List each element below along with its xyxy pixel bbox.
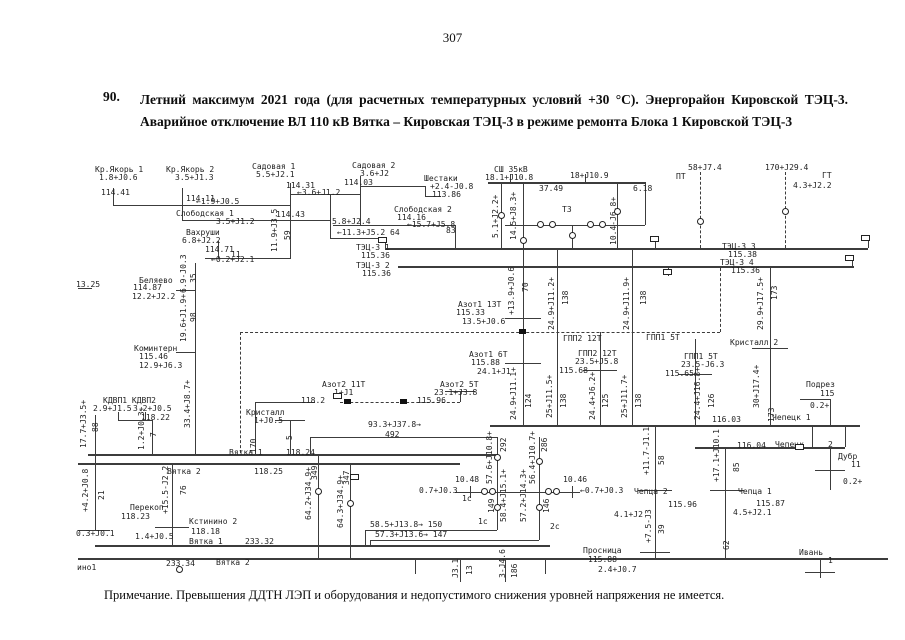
diagram-label: 5.8+J2.4 bbox=[332, 218, 371, 226]
diagram-label: 64 bbox=[390, 229, 400, 237]
diagram-label: 138 bbox=[635, 394, 643, 408]
diagram-line bbox=[545, 560, 546, 574]
diagram-label: 12.9+J6.3 bbox=[139, 362, 182, 370]
diagram-line bbox=[330, 238, 380, 239]
transformer-icon bbox=[587, 221, 594, 228]
diagram-label: Вятка 1 bbox=[229, 449, 263, 457]
diagram-label: 93.3+J37.8→ bbox=[368, 421, 421, 429]
transformer-icon bbox=[176, 566, 183, 573]
breaker-icon bbox=[350, 474, 359, 480]
diagram-label: 14.5+J8.3+ bbox=[510, 192, 518, 240]
diagram-label: Ивань bbox=[799, 549, 823, 557]
diagram-label: 292 bbox=[500, 438, 508, 452]
diagram-label: 64.3+J34.9+ bbox=[337, 475, 345, 528]
diagram-label: 113.86 bbox=[432, 191, 461, 199]
diagram-label: 115.96 bbox=[417, 397, 446, 405]
breaker-icon bbox=[650, 236, 659, 242]
transformer-icon bbox=[537, 221, 544, 228]
diagram-line bbox=[868, 240, 869, 248]
diagram-label: 2.9+J1.5 bbox=[93, 405, 132, 413]
breaker-icon bbox=[378, 237, 387, 243]
diagram-label: ино1 bbox=[77, 564, 96, 572]
diagram-line bbox=[176, 352, 195, 353]
diagram-label: 118.25 bbox=[254, 468, 283, 476]
diagram-label: 10.46 bbox=[563, 476, 587, 484]
diagram-line bbox=[539, 437, 540, 540]
diagram-label: 115.36 bbox=[361, 252, 390, 260]
diagram-label: 1+J0.5 bbox=[254, 417, 283, 425]
diagram-dashed-line bbox=[720, 268, 721, 332]
breaker-icon bbox=[333, 393, 342, 399]
diagram-line bbox=[365, 530, 366, 545]
diagram-label: +7.5-J3 bbox=[645, 509, 653, 543]
diagram-line bbox=[805, 572, 835, 573]
diagram-label: 116.04 bbox=[737, 442, 766, 450]
transformer-icon bbox=[545, 488, 552, 495]
diagram-label: Кстинино 2 bbox=[189, 518, 237, 526]
diagram-label: ГПП2 12Т bbox=[563, 335, 602, 343]
diagram-label: 57.2+J14.3+ bbox=[520, 469, 528, 522]
diagram-label: 18.1+J10.8 bbox=[485, 174, 533, 182]
diagram-label: 3.5+J1.3 bbox=[175, 174, 214, 182]
network-diagram: Кр.Якорь 11.8+J0.6114.41Кр.Якорь 23.5+J1… bbox=[0, 0, 905, 640]
diagram-label: 33.4+J8.7+ bbox=[184, 380, 192, 428]
diagram-label: 13.25 bbox=[76, 281, 100, 289]
diagram-label: Чепца 2 bbox=[634, 488, 668, 496]
diagram-label: 115.33 bbox=[456, 309, 485, 317]
diagram-label: 0.2+ bbox=[810, 402, 829, 410]
diagram-label: 10.48 bbox=[455, 476, 479, 484]
diagram-line bbox=[455, 492, 580, 493]
diagram-line bbox=[415, 560, 416, 574]
diagram-label: 286 bbox=[541, 438, 549, 452]
diagram-line bbox=[557, 250, 558, 425]
diagram-label: ГТ bbox=[822, 172, 832, 180]
diagram-line bbox=[600, 332, 601, 425]
diagram-label: Вятка 2 bbox=[167, 468, 201, 476]
diagram-label: 2 bbox=[828, 441, 833, 449]
diagram-label: 4.3+J2.2 bbox=[793, 182, 832, 190]
diagram-label: 29.9+J17.5+ bbox=[757, 277, 765, 330]
diagram-label: 12.2+J2.2 bbox=[132, 293, 175, 301]
diagram-label: 0.7+J0.3 bbox=[419, 487, 458, 495]
diagram-label: 11.9+J3.5 bbox=[271, 209, 279, 252]
diagram-label: 114.03 bbox=[344, 179, 373, 187]
diagram-label: Вятка 2 bbox=[216, 559, 250, 567]
diagram-label: 10.4-J6.8+ bbox=[610, 197, 618, 245]
diagram-label: +17.1+J10.1 bbox=[713, 429, 721, 482]
diagram-label: 57.6+J10.8+ bbox=[486, 431, 494, 484]
diagram-label: 35 bbox=[190, 273, 198, 283]
diagram-line bbox=[632, 250, 633, 425]
diagram-line bbox=[490, 425, 860, 427]
diagram-label: 170+J29.4 bbox=[765, 164, 808, 172]
diagram-label: 0.2+ bbox=[843, 478, 862, 486]
diagram-label: ←3.6+J1.2 bbox=[297, 189, 340, 197]
diagram-label: 1.8+J0.6 bbox=[99, 174, 138, 182]
diagram-line bbox=[460, 560, 461, 582]
diagram-label: 115.65 bbox=[665, 370, 694, 378]
transformer-icon bbox=[494, 504, 501, 511]
diagram-label: 115.96 bbox=[668, 501, 697, 509]
diagram-label: 146 bbox=[543, 499, 551, 513]
diagram-label: ПТ bbox=[676, 173, 686, 181]
diagram-label: 2с bbox=[550, 523, 560, 531]
diagram-line bbox=[505, 318, 541, 319]
diagram-label: 7 bbox=[150, 432, 158, 437]
footnote: Примечание. Превышения ДДТН ЛЭП и оборуд… bbox=[104, 588, 724, 603]
diagram-label: J3.1 bbox=[452, 559, 460, 578]
diagram-line bbox=[152, 420, 153, 455]
diagram-line bbox=[95, 545, 550, 547]
diagram-line bbox=[812, 427, 813, 447]
diagram-line bbox=[640, 552, 670, 553]
diagram-label: 6.8+J2.2 bbox=[182, 237, 221, 245]
closed-switch-icon bbox=[400, 399, 407, 404]
transformer-icon bbox=[536, 458, 543, 465]
diagram-line bbox=[370, 540, 371, 545]
breaker-icon bbox=[845, 255, 854, 261]
diagram-label: 64.2+J34.9+ bbox=[305, 467, 313, 520]
diagram-label: ГПП1 5Т bbox=[646, 334, 680, 342]
diagram-label: 114.71 bbox=[205, 246, 234, 254]
transformer-icon bbox=[494, 454, 501, 461]
diagram-label: 5 bbox=[286, 435, 294, 440]
transformer-icon bbox=[614, 208, 621, 215]
diagram-label: 138 bbox=[562, 291, 570, 305]
diagram-line bbox=[505, 363, 541, 364]
diagram-label: 3-J4.6 bbox=[499, 549, 507, 578]
transformer-icon bbox=[536, 504, 543, 511]
transformer-icon bbox=[697, 218, 704, 225]
transformer-icon bbox=[315, 488, 322, 495]
diagram-label: 4.1+J2 bbox=[614, 511, 643, 519]
diagram-label: Перекоп bbox=[130, 504, 164, 512]
diagram-label: 24.4+J6.2+ bbox=[589, 372, 597, 420]
transformer-icon bbox=[498, 212, 505, 219]
diagram-label: 58+J7.4 bbox=[688, 164, 722, 172]
diagram-line bbox=[78, 463, 460, 465]
diagram-label: 115.36 bbox=[731, 267, 760, 275]
diagram-line bbox=[310, 437, 497, 438]
diagram-label: 233.32 bbox=[245, 538, 274, 546]
diagram-label: 2.4+J0.7 bbox=[598, 566, 637, 574]
diagram-label: 1.2+J0.3+ bbox=[138, 407, 146, 450]
diagram-label: Т3 bbox=[562, 206, 572, 214]
diagram-label: 76 bbox=[180, 485, 188, 495]
diagram-label: 114.43 bbox=[276, 211, 305, 219]
diagram-label: 492 bbox=[385, 431, 399, 439]
diagram-label: 25+J11.7+ bbox=[621, 375, 629, 418]
diagram-label: +13.9+J0.6 bbox=[508, 267, 516, 315]
diagram-line bbox=[830, 399, 831, 425]
diagram-label: 23.5-J6.3 bbox=[681, 361, 724, 369]
diagram-label: 1.4+J0.5 bbox=[135, 533, 174, 541]
diagram-label: 138 bbox=[640, 291, 648, 305]
diagram-label: 70 bbox=[522, 282, 530, 292]
diagram-label: 118.24 bbox=[286, 449, 315, 457]
diagram-line bbox=[800, 399, 830, 400]
diagram-label: Вятка 1 bbox=[189, 538, 223, 546]
diagram-label: 18+J10.9 bbox=[570, 172, 609, 180]
diagram-label: 0.3+J0.1 bbox=[76, 530, 115, 538]
diagram-label: 37.49 bbox=[539, 185, 563, 193]
diagram-label: 115 bbox=[820, 390, 834, 398]
diagram-label: 85 bbox=[733, 462, 741, 472]
transformer-icon bbox=[569, 232, 576, 239]
diagram-label: 124 bbox=[525, 394, 533, 408]
diagram-label: ←11.3+J5.2 bbox=[337, 229, 385, 237]
diagram-label: Чепецк 1 bbox=[772, 414, 811, 422]
diagram-label: 30+J17.4+ bbox=[753, 365, 761, 408]
diagram-line bbox=[182, 220, 330, 221]
diagram-label: 21 bbox=[98, 490, 106, 500]
diagram-label: 24.4+J16.8+ bbox=[694, 367, 702, 420]
diagram-line bbox=[488, 182, 646, 184]
diagram-label: 114.87 bbox=[133, 284, 162, 292]
diagram-line bbox=[505, 225, 645, 226]
diagram-line bbox=[95, 415, 96, 455]
diagram-label: +11.7-J1.1 bbox=[643, 427, 651, 475]
diagram-label: ←1.9+J0.5 bbox=[196, 198, 239, 206]
diagram-line bbox=[155, 527, 189, 528]
diagram-label: 24.9+J11.9+ bbox=[623, 277, 631, 330]
diagram-label: ←0.7+J0.3 bbox=[580, 487, 623, 495]
diagram-label: 19.6+J1.9+ bbox=[180, 294, 188, 342]
diagram-dashed-line bbox=[700, 172, 701, 248]
diagram-label: 138 bbox=[560, 394, 568, 408]
diagram-label: Просница bbox=[583, 547, 622, 555]
diagram-line bbox=[330, 194, 331, 239]
diagram-label: 125 bbox=[602, 394, 610, 408]
diagram-label: 115.46 bbox=[139, 353, 168, 361]
diagram-label: 115.68 bbox=[559, 367, 588, 375]
transformer-icon bbox=[599, 221, 606, 228]
diagram-line bbox=[78, 558, 888, 560]
diagram-label: 115.36 bbox=[362, 270, 391, 278]
diagram-label: 24.9+J11.1+ bbox=[510, 367, 518, 420]
diagram-label: 56.4+J10.7+ bbox=[529, 431, 537, 484]
breaker-icon bbox=[861, 235, 870, 241]
transformer-icon bbox=[782, 208, 789, 215]
diagram-label: 62 bbox=[723, 540, 731, 550]
diagram-label: Подрез bbox=[806, 381, 835, 389]
diagram-line bbox=[572, 486, 573, 498]
diagram-label: 13 bbox=[466, 565, 474, 575]
transformer-icon bbox=[489, 488, 496, 495]
diagram-line bbox=[425, 186, 426, 196]
diagram-label: 59 bbox=[284, 230, 292, 240]
diagram-label: 3.5+J1.2 bbox=[216, 218, 255, 226]
diagram-label: 118.2 bbox=[301, 397, 325, 405]
diagram-line bbox=[385, 248, 868, 250]
diagram-label: 115.88 bbox=[471, 359, 500, 367]
closed-switch-icon bbox=[344, 399, 351, 404]
diagram-line bbox=[95, 456, 96, 530]
diagram-label: 17.7+J3.5+ bbox=[80, 400, 88, 448]
diagram-label: 88 bbox=[92, 422, 100, 432]
diagram-label: 1с bbox=[462, 495, 472, 503]
diagram-label: 114.41 bbox=[101, 189, 130, 197]
diagram-label: 24.9+J11.2+ bbox=[548, 277, 556, 330]
breaker-icon bbox=[795, 444, 804, 450]
diagram-label: 5.5+J2.1 bbox=[256, 171, 295, 179]
diagram-label: 6.18 bbox=[633, 185, 652, 193]
diagram-label: 83 bbox=[446, 227, 456, 235]
diagram-line bbox=[370, 540, 539, 541]
diagram-label: 13.5+J0.6 bbox=[462, 318, 505, 326]
diagram-label: 115.88 bbox=[588, 556, 617, 564]
diagram-label: 3.6+J2 bbox=[360, 170, 389, 178]
transformer-icon bbox=[520, 237, 527, 244]
diagram-label: 57.3+J13.6→ 147 bbox=[375, 531, 447, 539]
diagram-line bbox=[195, 263, 196, 455]
transformer-icon bbox=[481, 488, 488, 495]
diagram-label: ←0.2+J2.1 bbox=[211, 256, 254, 264]
diagram-dashed-line bbox=[240, 332, 241, 453]
diagram-label: 115.87 bbox=[756, 500, 785, 508]
diagram-line bbox=[497, 437, 498, 530]
diagram-label: 24.1+J1 bbox=[477, 368, 511, 376]
diagram-label: Чепца 1 bbox=[738, 488, 772, 496]
diagram-label: +4.2+J0.8 bbox=[82, 469, 90, 512]
diagram-label: 126 bbox=[708, 394, 716, 408]
transformer-icon bbox=[553, 488, 560, 495]
diagram-line bbox=[845, 427, 846, 447]
diagram-label: 1с bbox=[478, 518, 488, 526]
diagram-line bbox=[815, 470, 845, 471]
diagram-line bbox=[820, 560, 821, 578]
diagram-label: 173 bbox=[771, 286, 779, 300]
diagram-label: 58.5+J13.8→ 150 bbox=[370, 521, 442, 529]
closed-switch-icon bbox=[519, 329, 526, 334]
transformer-icon bbox=[549, 221, 556, 228]
diagram-label: 98 bbox=[190, 312, 198, 322]
breaker-icon bbox=[663, 269, 672, 275]
diagram-label: 58 bbox=[658, 455, 666, 465]
diagram-label: 118.23 bbox=[121, 513, 150, 521]
diagram-label: 58.4+J15.1+ bbox=[500, 469, 508, 522]
diagram-label: 6.9-J0.3 bbox=[180, 254, 188, 293]
transformer-icon bbox=[347, 500, 354, 507]
diagram-label: 25+J11.5+ bbox=[546, 375, 554, 418]
diagram-label: 118.18 bbox=[191, 528, 220, 536]
document-page: 307 90. Летний максимум 2021 года (для р… bbox=[0, 0, 905, 640]
diagram-label: 116.03 bbox=[712, 416, 741, 424]
diagram-label: 4.5+J2.1 bbox=[733, 509, 772, 517]
diagram-label: 1 bbox=[828, 557, 833, 565]
diagram-label: Кристалл 2 bbox=[730, 339, 778, 347]
diagram-label: 186 bbox=[511, 564, 519, 578]
diagram-label: 11 bbox=[851, 461, 861, 469]
diagram-line bbox=[398, 266, 854, 268]
diagram-label: 39 bbox=[658, 524, 666, 534]
diagram-label: 23.5+J5.8 bbox=[575, 358, 618, 366]
diagram-line bbox=[752, 348, 788, 349]
